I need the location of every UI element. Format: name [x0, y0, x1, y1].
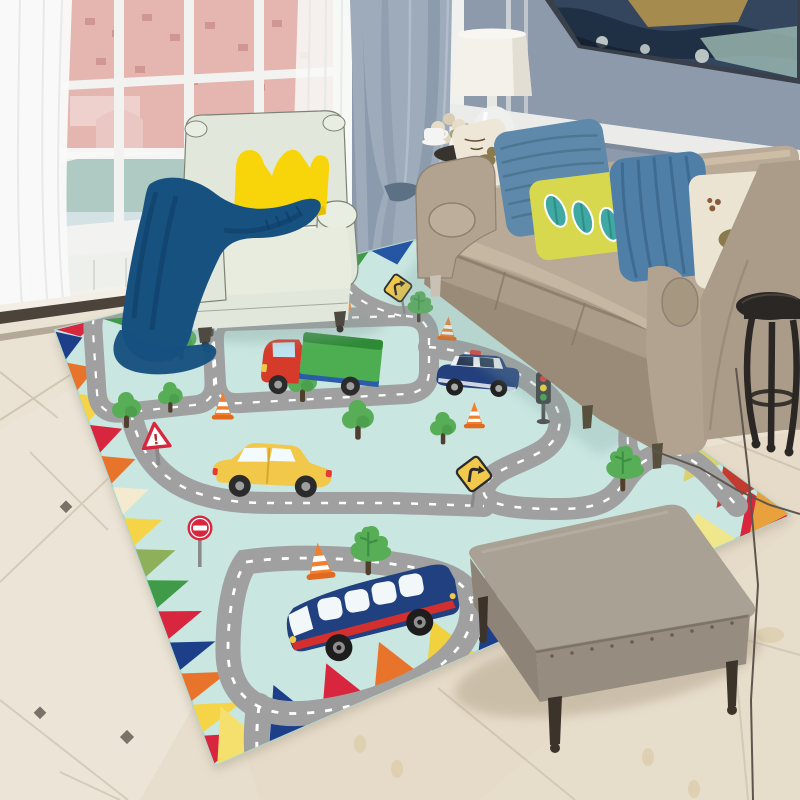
scene-canvas: ! [0, 0, 800, 800]
sofa-front-leg [430, 275, 441, 297]
living-room-scene: ! [0, 0, 800, 800]
armchair-foot [198, 327, 212, 343]
yellow-car-taillight [326, 470, 332, 477]
yellow-car-frontlight [212, 468, 217, 475]
coffee-cup [422, 128, 447, 146]
truck-headlight [261, 364, 267, 372]
